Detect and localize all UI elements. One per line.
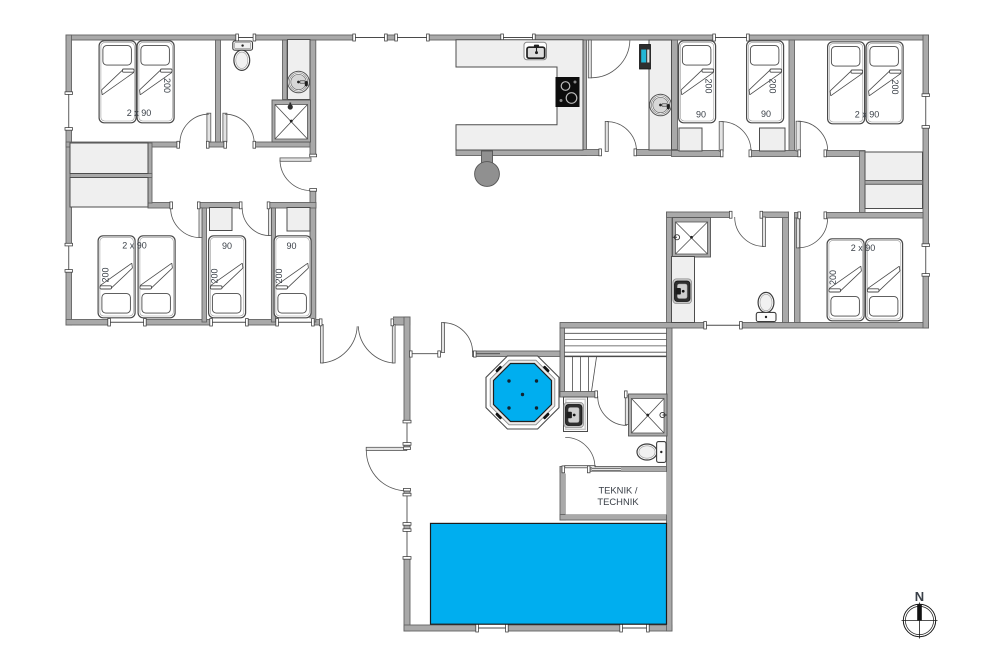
svg-text:TECHNIK: TECHNIK [597, 496, 639, 507]
svg-text:200: 200 [101, 267, 111, 282]
svg-text:90: 90 [222, 241, 232, 251]
svg-text:200: 200 [890, 79, 900, 94]
svg-text:TEKNIK /: TEKNIK / [598, 485, 637, 496]
svg-text:2 x 90: 2 x 90 [855, 110, 880, 120]
svg-text:90: 90 [696, 110, 706, 120]
svg-text:200: 200 [274, 268, 284, 283]
svg-text:200: 200 [704, 78, 714, 93]
svg-text:200: 200 [828, 270, 838, 285]
svg-text:200: 200 [162, 78, 172, 93]
svg-text:200: 200 [210, 268, 220, 283]
svg-text:2 x 90: 2 x 90 [851, 243, 876, 253]
svg-text:90: 90 [761, 109, 771, 119]
svg-text:2 x 90: 2 x 90 [122, 241, 147, 251]
svg-text:200: 200 [768, 78, 778, 93]
svg-text:N: N [915, 589, 924, 604]
svg-text:2 x 90: 2 x 90 [127, 108, 152, 118]
svg-text:90: 90 [286, 241, 296, 251]
